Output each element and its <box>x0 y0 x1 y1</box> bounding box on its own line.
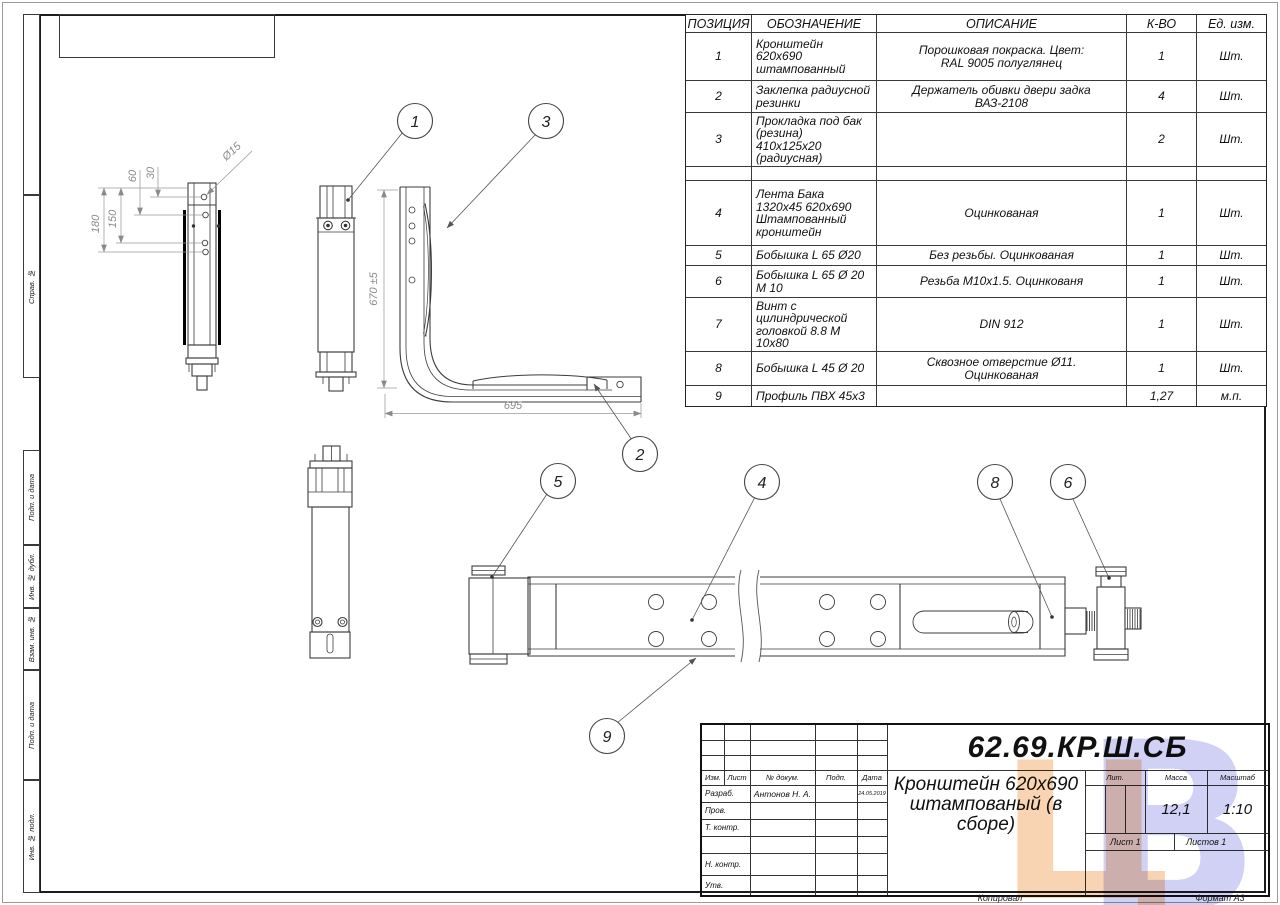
bom-header-position: ПОЗИЦИЯ <box>686 15 752 33</box>
bom-unit: Шт. <box>1197 266 1266 298</box>
dim-695: 695 <box>504 400 523 412</box>
balloon-5: 5 <box>554 474 563 491</box>
bom-row: 4 Лента Бака 1320х45 620х690 Штампованны… <box>686 181 1266 246</box>
bom-pos: 7 <box>686 298 752 352</box>
sig-razrab: Разраб. <box>702 785 753 802</box>
bom-pos <box>686 167 752 181</box>
bom-row: 1 Кронштейн 620х690 штампованный Порошко… <box>686 33 1266 81</box>
col-podp: Подп. <box>815 770 857 785</box>
sig-utv: Утв. <box>702 875 753 895</box>
sig-prov: Пров. <box>702 802 753 819</box>
bom-spacer-row <box>686 167 1266 181</box>
bom-name: Бобышка L 65 Ø20 <box>752 246 877 266</box>
col-docnum: № докум. <box>750 770 815 785</box>
bom-name: Прокладка под бак (резина) 410х125х20 (р… <box>752 113 877 167</box>
bom-row: 5 Бобышка L 65 Ø20 Без резьбы. Оцинкован… <box>686 246 1266 266</box>
lit-label: Лит. <box>1085 770 1145 785</box>
bom-header-unit: Ед. изм. <box>1197 15 1266 33</box>
bom-header-designation: ОБОЗНАЧЕНИЕ <box>752 15 877 33</box>
view-l-bracket <box>400 187 641 402</box>
bom-qty: 1 <box>1127 298 1197 352</box>
drawing-sheet: Справ. № Подп. и дата Инв. № дубл. Взам.… <box>0 0 1280 905</box>
bom-unit: Шт. <box>1197 33 1266 81</box>
bom-desc: Без резьбы. Оцинкованая <box>877 246 1127 266</box>
bom-qty: 4 <box>1127 81 1197 113</box>
view-assembly <box>469 566 1141 664</box>
bom-desc <box>877 113 1127 167</box>
view-side-profile <box>185 183 221 390</box>
balloon-9: 9 <box>603 729 612 746</box>
balloon-1: 1 <box>411 114 420 131</box>
balloon-3: 3 <box>542 114 551 131</box>
bom-header-qty: К-ВО <box>1127 15 1197 33</box>
dim-670: 670 ±5 <box>368 271 380 305</box>
dim-180: 180 <box>90 214 102 233</box>
bom-qty: 1 <box>1127 266 1197 298</box>
bom-row: 9 Профиль ПВХ 45х3 1,27 м.п. <box>686 386 1266 406</box>
bom-qty: 2 <box>1127 113 1197 167</box>
bom-desc <box>877 386 1127 406</box>
bom-qty <box>1127 167 1197 181</box>
bom-name: Профиль ПВХ 45х3 <box>752 386 877 406</box>
bom-row: 8 Бобышка L 45 Ø 20 Сквозное отверстие Ø… <box>686 352 1266 386</box>
bom-name <box>752 167 877 181</box>
balloon-4: 4 <box>758 475 767 492</box>
bom-pos: 3 <box>686 113 752 167</box>
bom-pos: 9 <box>686 386 752 406</box>
balloon-6: 6 <box>1064 475 1073 492</box>
bom-name: Винт с цилиндрической головкой 8.8 М 10х… <box>752 298 877 352</box>
bom-qty: 1 <box>1127 181 1197 246</box>
bom-header-description: ОПИСАНИЕ <box>877 15 1127 33</box>
bom-pos: 2 <box>686 81 752 113</box>
bom-header-row: ПОЗИЦИЯ ОБОЗНАЧЕНИЕ ОПИСАНИЕ К-ВО Ед. из… <box>686 15 1266 33</box>
document-title: Кронштейн 620х690 штампованый (в сборе) <box>887 775 1085 835</box>
view-back-small <box>308 446 352 658</box>
view-front-small <box>316 186 356 391</box>
bom-pos: 8 <box>686 352 752 386</box>
bom-pos: 5 <box>686 246 752 266</box>
mass-value: 12,1 <box>1145 785 1207 833</box>
bom-qty: 1 <box>1127 33 1197 81</box>
bom-unit: Шт. <box>1197 246 1266 266</box>
sig-nkontr: Н. контр. <box>702 853 753 875</box>
scale-label: Масштаб <box>1207 770 1268 785</box>
bom-name: Кронштейн 620х690 штампованный <box>752 33 877 81</box>
bom-pos: 4 <box>686 181 752 246</box>
bom-desc: Держатель обивки двери задка ВАЗ-2108 <box>877 81 1127 113</box>
bom-unit: Шт. <box>1197 113 1266 167</box>
razrab-date: 24.05.2019 <box>857 785 887 802</box>
razrab-name: Антонов Н. А. <box>750 785 815 802</box>
bom-unit: Шт. <box>1197 181 1266 246</box>
bom-unit: Шт. <box>1197 298 1266 352</box>
balloon-2: 2 <box>635 447 645 464</box>
col-date: Дата <box>857 770 887 785</box>
bom-row: 6 Бобышка L 65 Ø 20 М 10 Резьба М10х1.5.… <box>686 266 1266 298</box>
bom-unit: м.п. <box>1197 386 1266 406</box>
format-label: Формат А3 <box>1170 893 1270 903</box>
bom-pos: 1 <box>686 33 752 81</box>
bom-name: Лента Бака 1320х45 620х690 Штампованный … <box>752 181 877 246</box>
dim-diameter-15: Ø15 <box>220 140 245 164</box>
bom-name: Бобышка L 45 Ø 20 <box>752 352 877 386</box>
view-a-dimensions: Ø15 60 30 180 150 <box>90 140 252 252</box>
col-izm: Изм. <box>702 770 724 785</box>
bom-desc: Оцинкованая <box>877 181 1127 246</box>
title-block: 62.69.КР.Ш.СБ Кронштейн 620х690 штампова… <box>700 723 1270 897</box>
sig-tkontr: Т. контр. <box>702 819 753 836</box>
bom-name: Заклепка радиусной резинки <box>752 81 877 113</box>
sheets-total: Листов 1 <box>1174 833 1280 850</box>
balloon-8: 8 <box>991 475 1000 492</box>
bom-qty: 1 <box>1127 352 1197 386</box>
bom-unit: Шт. <box>1197 352 1266 386</box>
col-list: Лист <box>724 770 750 785</box>
bom-desc <box>877 167 1127 181</box>
bom-row: 3 Прокладка под бак (резина) 410х125х20 … <box>686 113 1266 167</box>
kopiroval-label: Копировал <box>940 893 1060 903</box>
dim-150: 150 <box>107 209 119 228</box>
bom-unit <box>1197 167 1266 181</box>
scale-value: 1:10 <box>1207 785 1268 833</box>
bom-desc: Сквозное отверстие Ø11. Оцинкованая <box>877 352 1127 386</box>
bom-qty: 1,27 <box>1127 386 1197 406</box>
document-designation: 62.69.КР.Ш.СБ <box>887 725 1280 770</box>
dim-60: 60 <box>127 169 139 182</box>
mass-label: Масса <box>1145 770 1207 785</box>
dim-30: 30 <box>145 166 157 179</box>
bom-table: ПОЗИЦИЯ ОБОЗНАЧЕНИЕ ОПИСАНИЕ К-ВО Ед. из… <box>685 14 1267 407</box>
bom-name: Бобышка L 65 Ø 20 М 10 <box>752 266 877 298</box>
bom-desc: Порошковая покраска. Цвет: RAL 9005 полу… <box>877 33 1127 81</box>
bom-desc: DIN 912 <box>877 298 1127 352</box>
bom-unit: Шт. <box>1197 81 1266 113</box>
bom-desc: Резьба М10х1.5. Оцинкованя <box>877 266 1127 298</box>
bom-row: 7 Винт с цилиндрической головкой 8.8 М 1… <box>686 298 1266 352</box>
bom-qty: 1 <box>1127 246 1197 266</box>
bom-row: 2 Заклепка радиусной резинки Держатель о… <box>686 81 1266 113</box>
bom-pos: 6 <box>686 266 752 298</box>
